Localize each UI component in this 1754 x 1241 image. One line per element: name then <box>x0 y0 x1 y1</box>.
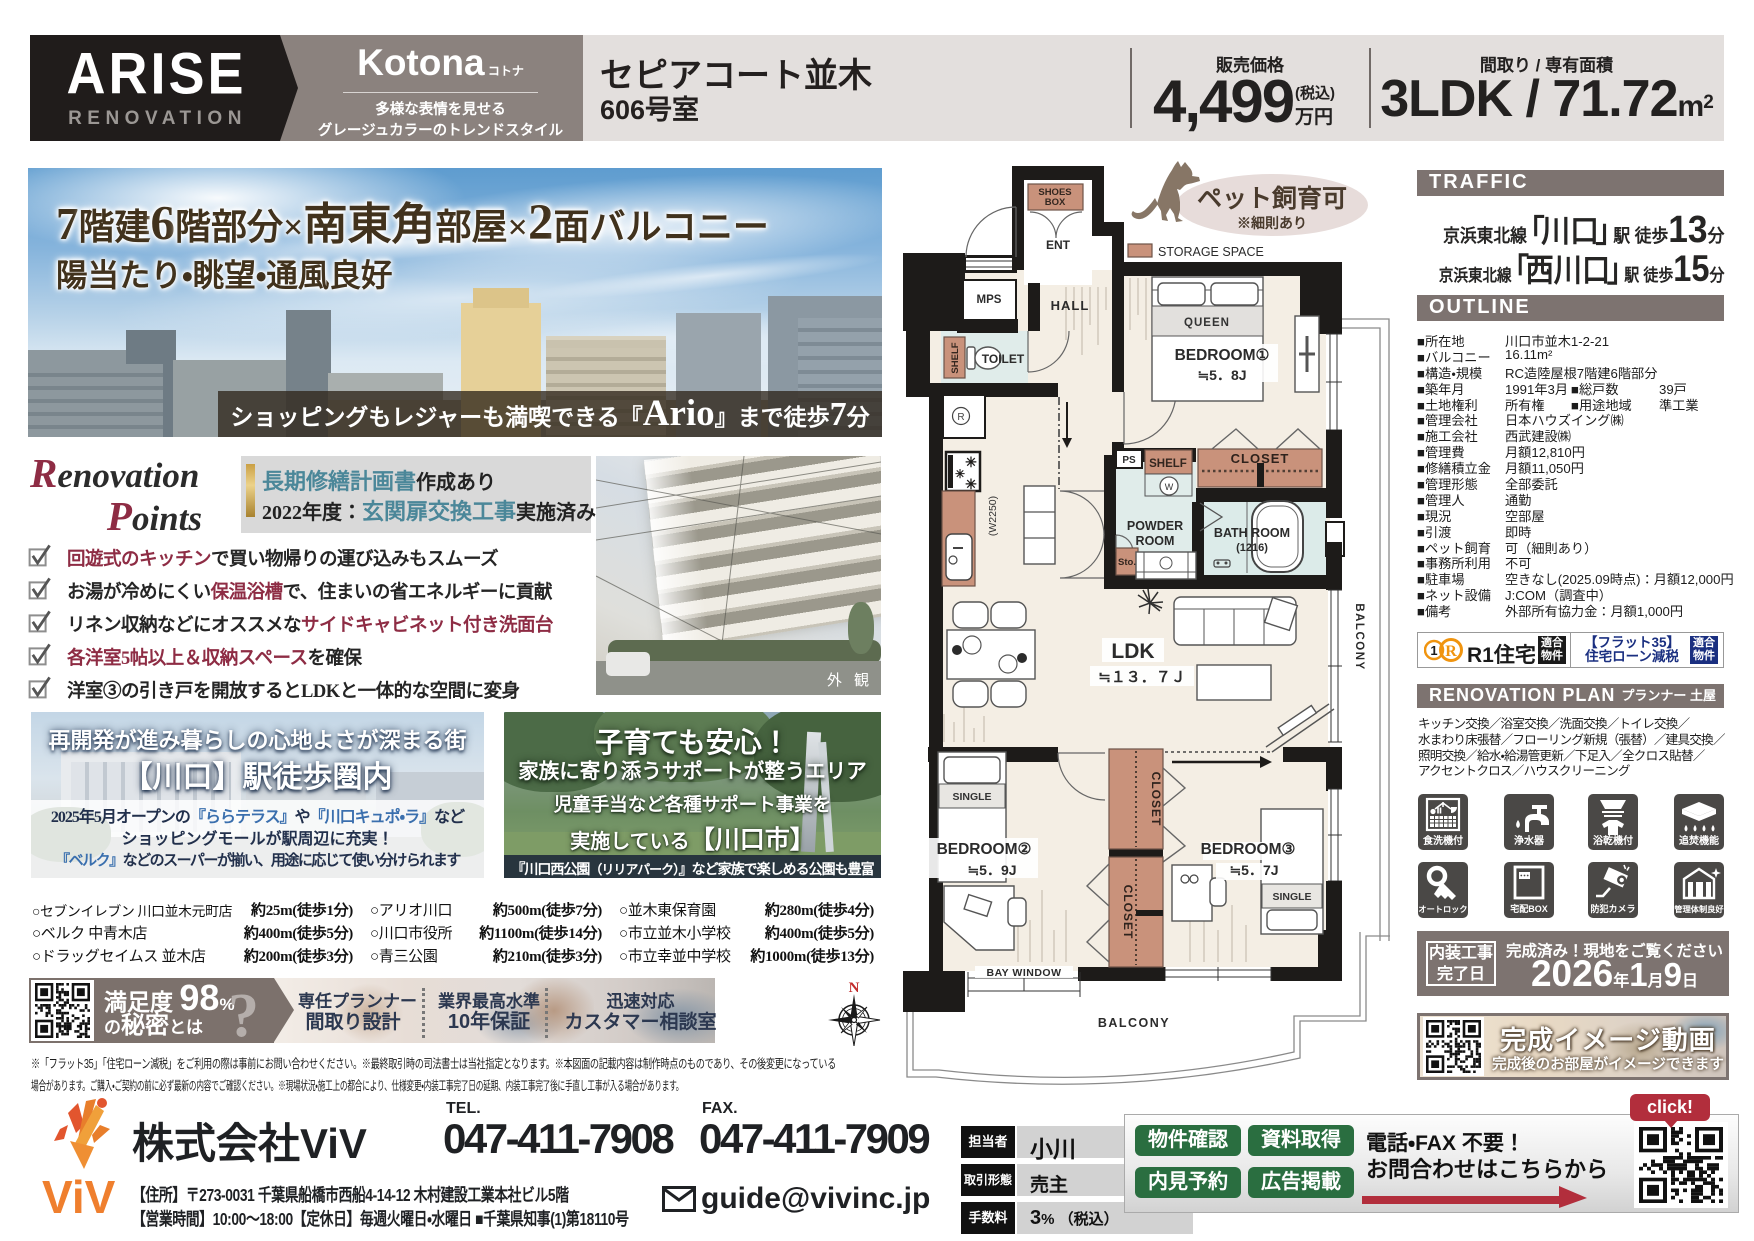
svg-text:BATH ROOM: BATH ROOM <box>1214 526 1290 540</box>
svg-text:BOX: BOX <box>1045 197 1066 208</box>
svg-text:POWDER: POWDER <box>1127 519 1183 533</box>
svg-text:(W2250): (W2250) <box>987 496 999 536</box>
svg-text:BAY WINDOW: BAY WINDOW <box>986 967 1061 979</box>
svg-text:BALCONY: BALCONY <box>1353 603 1365 670</box>
svg-text:≒5．7J: ≒5．7J <box>1229 862 1278 878</box>
svg-text:Sto.: Sto. <box>1118 557 1136 568</box>
svg-text:CLOSET: CLOSET <box>1231 451 1290 466</box>
svg-text:LDK: LDK <box>1111 640 1154 663</box>
svg-text:BEDROOM③: BEDROOM③ <box>1201 841 1296 858</box>
svg-text:R: R <box>957 412 964 423</box>
svg-text:SINGLE: SINGLE <box>1272 891 1311 903</box>
svg-text:W: W <box>1165 482 1174 492</box>
svg-text:QUEEN: QUEEN <box>1184 317 1230 329</box>
svg-text:✳: ✳ <box>955 467 965 481</box>
svg-text:MPS: MPS <box>977 294 1002 306</box>
svg-text:ROOM: ROOM <box>1136 534 1175 548</box>
svg-text:STORAGE SPACE: STORAGE SPACE <box>1158 245 1264 259</box>
svg-text:N: N <box>849 980 860 996</box>
svg-text:✳: ✳ <box>965 476 977 492</box>
svg-text:SHELF: SHELF <box>1149 458 1187 470</box>
svg-text:CLOSET: CLOSET <box>1149 772 1163 827</box>
svg-text:HALL: HALL <box>1051 298 1090 313</box>
svg-text:※細則あり: ※細則あり <box>1237 215 1307 231</box>
svg-text:SHELF: SHELF <box>950 342 961 373</box>
svg-text:TOILET: TOILET <box>982 352 1025 366</box>
svg-text:✳: ✳ <box>965 454 977 470</box>
svg-text:R: R <box>1445 643 1457 660</box>
svg-text:≒5．9J: ≒5．9J <box>967 862 1016 878</box>
svg-text:1: 1 <box>1430 643 1437 658</box>
svg-text:ViV: ViV <box>42 1171 116 1223</box>
svg-text:ペット飼育可: ペット飼育可 <box>1197 184 1347 213</box>
svg-text:BEDROOM①: BEDROOM① <box>1175 347 1270 364</box>
svg-text:ENT: ENT <box>1046 238 1071 252</box>
svg-text:PS: PS <box>1122 455 1136 466</box>
svg-text:(1216): (1216) <box>1236 542 1268 554</box>
svg-text:BALCONY: BALCONY <box>1098 1016 1170 1030</box>
svg-text:BEDROOM②: BEDROOM② <box>937 841 1032 858</box>
svg-text:SINGLE: SINGLE <box>952 791 991 803</box>
svg-text:CLOSET: CLOSET <box>1121 885 1135 940</box>
svg-text:≒１３．７Ｊ: ≒１３．７Ｊ <box>1098 669 1186 686</box>
svg-text:≒5．8J: ≒5．8J <box>1197 367 1246 383</box>
